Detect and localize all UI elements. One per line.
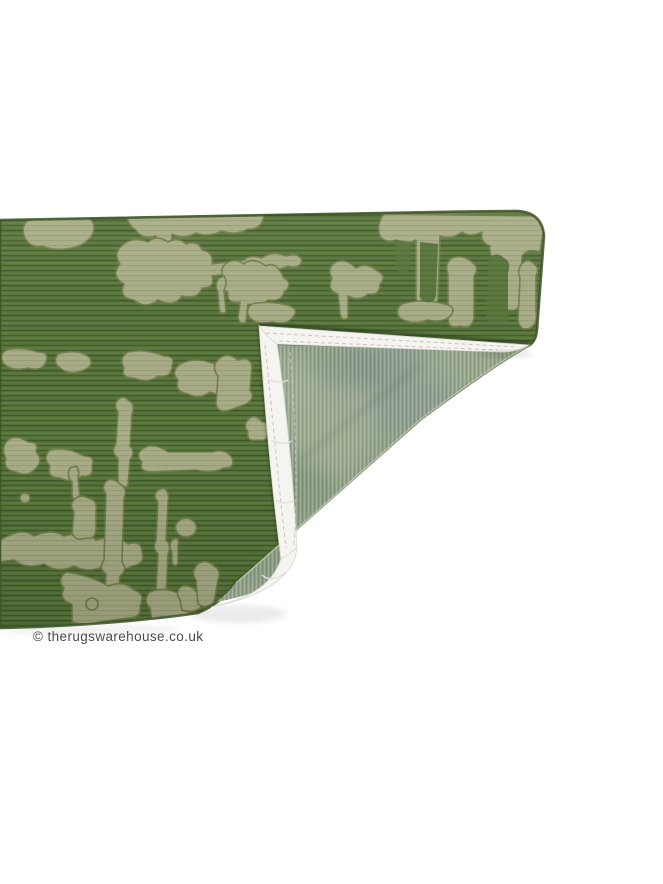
product-photo: © therugswarehouse.co.uk	[0, 0, 663, 884]
rug-photo-svg	[0, 0, 663, 884]
watermark: © therugswarehouse.co.uk	[33, 629, 203, 644]
tip-shadow	[477, 350, 533, 358]
